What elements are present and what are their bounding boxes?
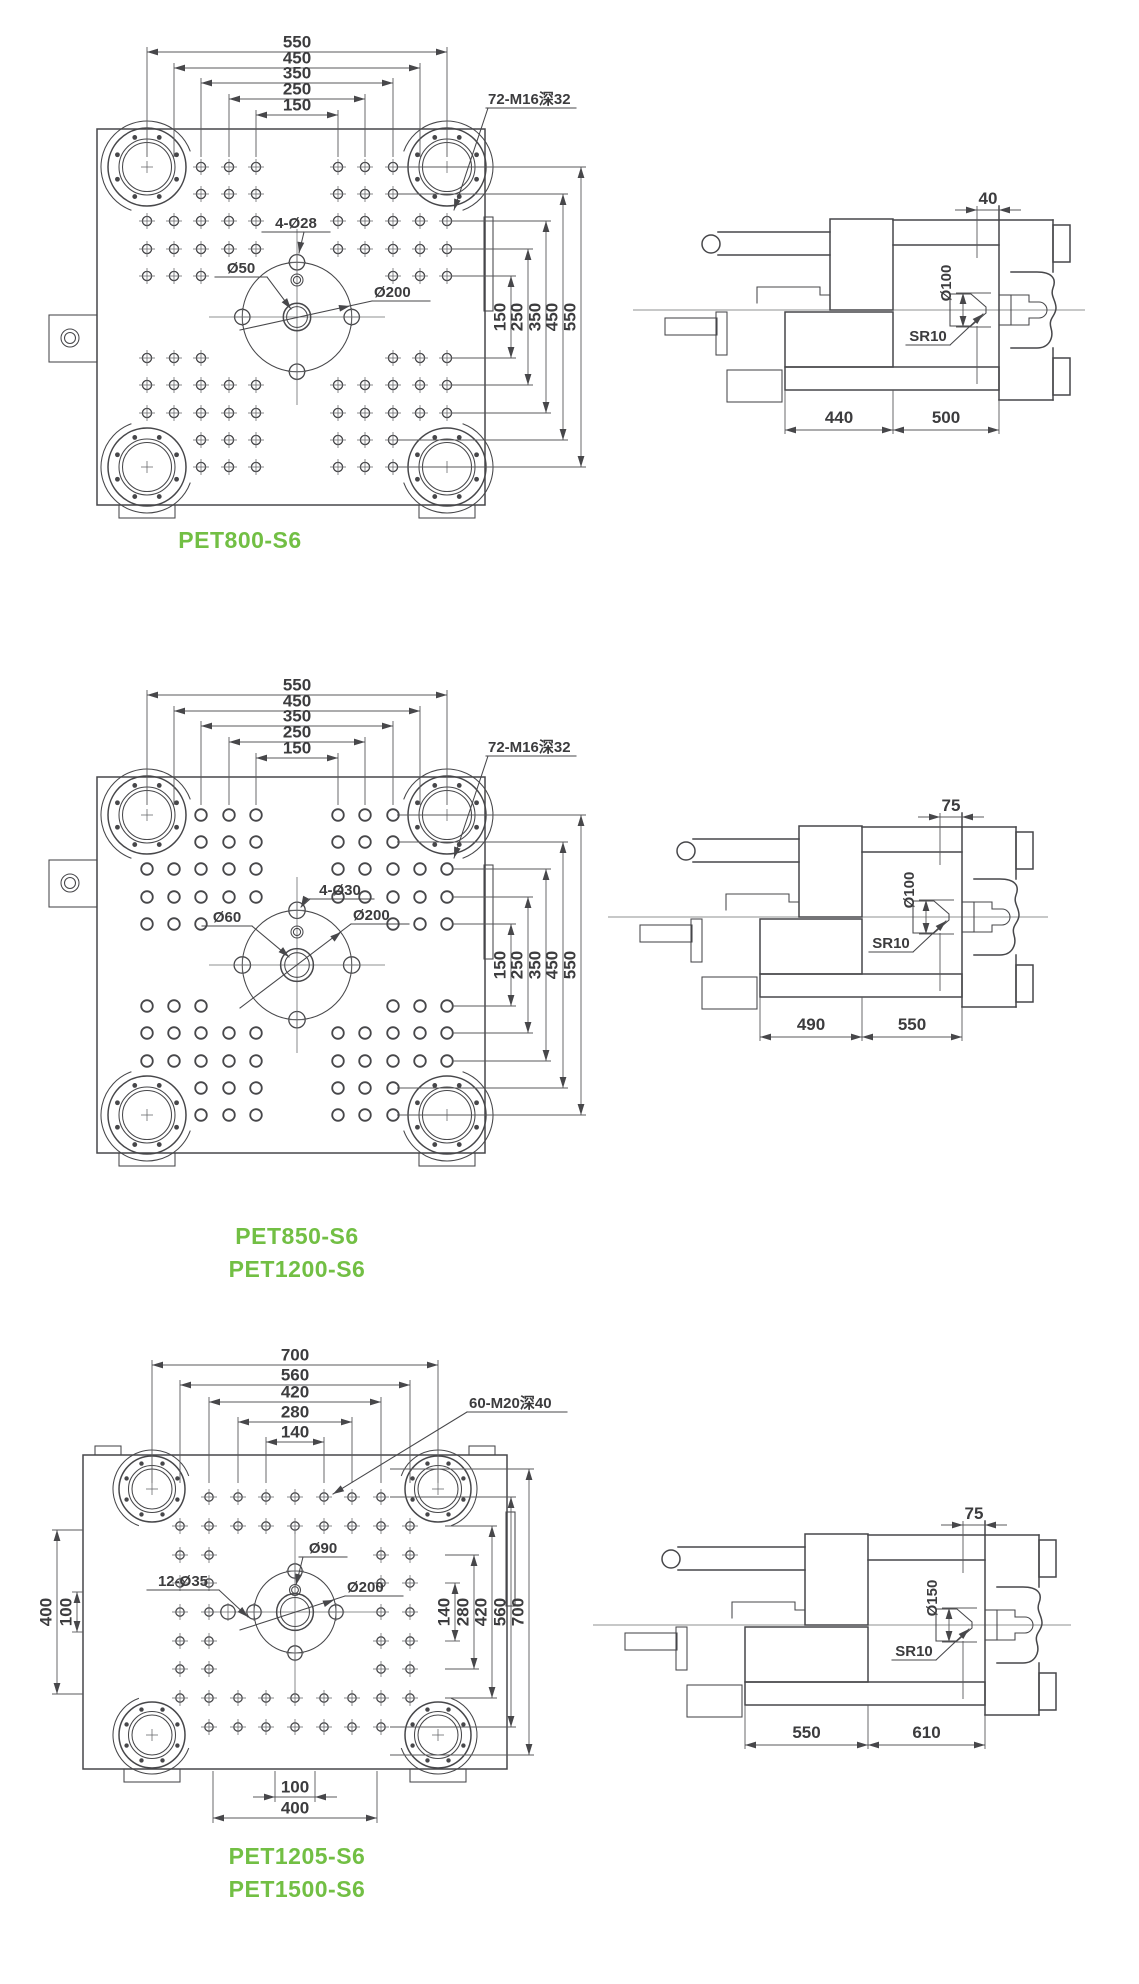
dim-label: 72-M16深32 (488, 90, 571, 108)
model-label-pet850-1200: PET850-S6 PET1200-S6 (207, 1220, 387, 1286)
dim-label: 700 (281, 1346, 309, 1365)
technical-drawing: 55045035025015015025035045055072-M16深324… (0, 0, 1139, 1984)
dim-label: 420 (281, 1383, 309, 1402)
dim-label: 12-Ø35 (158, 1573, 208, 1590)
dim-label: Ø50 (227, 260, 255, 277)
dim-label: Ø100 (901, 872, 918, 909)
dim-label: 420 (472, 1598, 491, 1626)
dim-label: 75 (942, 796, 961, 815)
machine-section-1: 55045035025015015025035045055072-M16深324… (49, 676, 1048, 1167)
model-name: PET1200-S6 (207, 1253, 387, 1286)
dim-label: Ø100 (938, 265, 955, 302)
dim-label: Ø200 (374, 284, 411, 301)
dim-label: 4-Ø28 (275, 215, 317, 232)
dim-label: 560 (491, 1598, 510, 1626)
model-label-pet1205-1500: PET1205-S6 PET1500-S6 (207, 1840, 387, 1906)
model-name: PET850-S6 (207, 1220, 387, 1253)
dim-label: 550 (561, 951, 580, 979)
dim-label: 100 (281, 1778, 309, 1797)
machine-section-0: 55045035025015015025035045055072-M16深324… (49, 33, 1085, 519)
dim-label: 450 (543, 303, 562, 331)
dim-label: 500 (932, 408, 960, 427)
dim-label: SR10 (872, 935, 910, 952)
dim-label: Ø90 (309, 1540, 337, 1557)
dim-label: Ø60 (213, 909, 241, 926)
side-view (608, 813, 1048, 1009)
dim-label: 250 (508, 303, 527, 331)
callout-labels: 60-M20深4012-Ø35Ø90Ø200 (147, 1394, 567, 1630)
dim-label: 140 (435, 1598, 454, 1626)
dim-label: 280 (281, 1403, 309, 1422)
dim-label: 280 (454, 1598, 473, 1626)
dim-label: 400 (281, 1799, 309, 1818)
front-view (49, 121, 493, 518)
dim-label: 60-M20深40 (469, 1394, 552, 1412)
model-label-pet800: PET800-S6 (150, 524, 330, 557)
dim-label: SR10 (909, 328, 947, 345)
dim-label: Ø200 (347, 1579, 384, 1596)
dim-label: Ø150 (924, 1580, 941, 1617)
dim-label: 490 (797, 1015, 825, 1034)
model-name: PET1500-S6 (207, 1873, 387, 1906)
callout-labels: 72-M16深324-Ø28Ø50Ø200 (215, 90, 576, 330)
side-view (593, 1521, 1071, 1717)
machine-section-2: 7005604202801401402804205607004001001004… (37, 1346, 1072, 1824)
model-name: PET800-S6 (150, 524, 330, 557)
dim-label: 150 (283, 96, 311, 115)
dim-label: 400 (37, 1598, 56, 1626)
dim-label: 700 (509, 1598, 528, 1626)
dim-label: 140 (281, 1423, 309, 1442)
dim-label: 550 (561, 303, 580, 331)
dim-label: 550 (792, 1723, 820, 1742)
dim-label: 4-Ø30 (319, 882, 361, 899)
dim-label: 150 (283, 739, 311, 758)
dim-label: 450 (543, 951, 562, 979)
dim-label: 100 (57, 1598, 76, 1626)
dim-label: 40 (979, 189, 998, 208)
dim-label: 550 (898, 1015, 926, 1034)
dim-label: 610 (912, 1723, 940, 1742)
dim-label: SR10 (895, 1643, 933, 1660)
side-view (633, 206, 1085, 402)
model-name: PET1205-S6 (207, 1840, 387, 1873)
dim-label: 75 (965, 1504, 984, 1523)
dim-label: 250 (508, 951, 527, 979)
dim-label: 72-M16深32 (488, 738, 571, 756)
dim-label: Ø200 (353, 907, 390, 924)
platen-dimension-sheet: 55045035025015015025035045055072-M16深324… (0, 0, 1139, 1984)
dim-label: 440 (825, 408, 853, 427)
front-view (49, 769, 493, 1166)
